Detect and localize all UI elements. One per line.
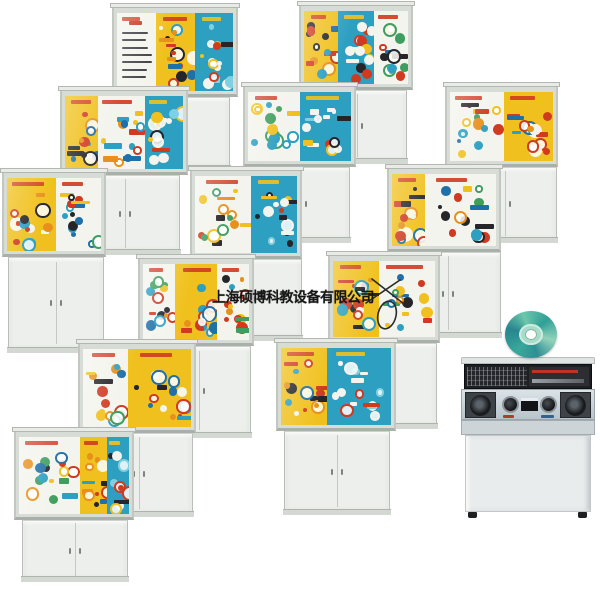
model-part (240, 223, 251, 227)
model-part (303, 408, 307, 412)
model-part (409, 195, 425, 199)
model-part (209, 72, 218, 81)
model-part (367, 26, 374, 36)
console-foot-left (468, 512, 477, 518)
model-part (152, 292, 164, 304)
display-panels (7, 178, 101, 251)
model-part (265, 113, 276, 124)
model-part (351, 378, 364, 384)
model-part (276, 106, 282, 112)
panel-white (425, 174, 496, 246)
panel-title-strip (436, 178, 468, 182)
panel-white (98, 96, 145, 169)
model-part (421, 307, 432, 318)
cabinet-display-box (387, 165, 501, 252)
model-part (166, 44, 176, 48)
model-part (543, 112, 552, 121)
model-part (441, 211, 450, 220)
display-panels (195, 176, 297, 253)
panel-yellow (156, 13, 194, 91)
sliding-door-seam (125, 179, 126, 248)
model-part (67, 466, 79, 478)
panel-white (195, 176, 251, 253)
cabinet-display-box (299, 2, 413, 90)
model-part (266, 102, 272, 108)
display-panels (450, 92, 553, 161)
sliding-door-seam (337, 435, 338, 507)
panel-white (56, 178, 101, 251)
panel-title-strip (311, 15, 327, 19)
model-part (306, 61, 314, 65)
stereo-display-stripe (532, 370, 578, 373)
model-part (543, 148, 550, 155)
model-part (279, 215, 288, 219)
cabinet-top-cap (58, 86, 190, 91)
display-panels (281, 348, 391, 425)
model-part (62, 493, 78, 499)
model-part (97, 386, 107, 396)
model-part (103, 156, 118, 162)
panel-white (374, 11, 408, 84)
model-part (344, 362, 357, 375)
console-front-band (461, 420, 595, 435)
cassette-slot (521, 398, 538, 411)
console-top-cap (461, 357, 595, 364)
model-part (263, 206, 274, 217)
display-panels (392, 174, 496, 246)
model-part (200, 54, 204, 58)
model-part (303, 140, 313, 145)
panel-title-strip (12, 182, 44, 186)
model-part (458, 150, 466, 158)
panel-title-strip (306, 96, 340, 100)
console-foot-right (578, 512, 587, 518)
model-part (158, 153, 169, 164)
model-part (213, 42, 221, 50)
label-chip-blue (541, 415, 554, 418)
text-board-line (122, 61, 152, 63)
model-part (527, 140, 540, 153)
model-part (307, 26, 315, 34)
model-part (268, 237, 275, 244)
model-part (317, 69, 327, 79)
model-part (23, 459, 33, 469)
model-part (475, 185, 482, 192)
model-part (200, 326, 204, 330)
panel-teal (145, 96, 183, 169)
console-stereo-deck (529, 367, 589, 386)
panel-title-strip (336, 352, 365, 356)
model-part (87, 453, 93, 459)
model-part (16, 221, 20, 225)
model-part (168, 64, 182, 69)
model-part (35, 463, 45, 473)
model-part (338, 280, 354, 283)
cabinet-top-cap (12, 427, 136, 432)
model-part (43, 223, 52, 232)
model-part (314, 115, 322, 123)
cabinet-top-cap (110, 3, 240, 8)
sliding-door-seam (505, 171, 506, 236)
model-part (221, 42, 233, 47)
model-part (197, 284, 205, 292)
model-part (59, 478, 68, 484)
model-part (36, 193, 45, 197)
model-part (355, 389, 365, 399)
door-handle (143, 471, 145, 477)
model-part (459, 130, 467, 138)
model-part (110, 411, 125, 426)
model-part (355, 46, 365, 56)
model-part (294, 411, 299, 416)
model-part (287, 240, 294, 247)
model-part (255, 214, 260, 219)
model-part (396, 71, 406, 81)
panel-title-strip (140, 353, 172, 357)
model-part (71, 201, 90, 204)
display-panels (304, 11, 408, 84)
text-board-line (122, 76, 146, 78)
console-pedestal (465, 435, 591, 512)
model-part (413, 187, 417, 191)
model-part (418, 280, 425, 287)
cabinet-top-cap (0, 168, 108, 173)
model-part (70, 212, 75, 217)
model-part (114, 364, 120, 370)
door-handle (50, 300, 52, 306)
model-part (337, 388, 346, 397)
model-part (94, 502, 99, 507)
model-part (457, 139, 461, 143)
cabinet-display-box (14, 428, 134, 520)
model-part (340, 404, 353, 417)
panel-teal (251, 176, 297, 253)
control-console (461, 357, 595, 522)
model-part (235, 317, 249, 321)
model-part (222, 275, 230, 283)
model-part (170, 414, 176, 420)
display-panels (117, 13, 233, 91)
model-part (449, 229, 457, 237)
model-part (135, 111, 143, 116)
model-part (323, 115, 330, 119)
model-part (327, 108, 335, 112)
model-part (470, 205, 489, 211)
cabinet-display-box (2, 169, 106, 257)
cabinet-display-box (60, 87, 188, 175)
panel-title-strip (398, 178, 416, 182)
model-part (85, 463, 93, 471)
panel-title-strip (287, 352, 313, 356)
panel-yellow (80, 437, 108, 514)
panel-title-strip (84, 441, 98, 445)
door-handle (452, 291, 454, 297)
model-part (474, 141, 483, 150)
text-board-heading (129, 21, 142, 25)
display-panels (19, 437, 129, 514)
model-part (475, 109, 489, 114)
product-collage: 上海硕博科教设备有限公司 (0, 0, 600, 591)
model-part (331, 26, 339, 32)
speaker-cone-icon (470, 395, 491, 416)
model-part (417, 236, 425, 246)
display-panels (248, 92, 351, 161)
sliding-door-seam (75, 523, 76, 576)
panel-yellow (281, 348, 327, 425)
model-part (154, 315, 166, 327)
model-part (117, 370, 126, 379)
model-part (225, 76, 233, 88)
model-part (438, 205, 442, 209)
model-part (463, 186, 472, 191)
model-part (157, 385, 167, 391)
cabinet-top-cap (76, 339, 198, 344)
model-part (55, 452, 67, 464)
model-part (462, 118, 471, 127)
model-part (284, 382, 290, 388)
panel-title-strip (202, 17, 221, 21)
model-part (337, 116, 351, 121)
model-part (71, 156, 77, 162)
model-part (172, 30, 176, 34)
cabinet-base (22, 520, 128, 582)
console-control-matrix (467, 367, 527, 386)
cabinet-base (284, 431, 390, 515)
panel-title-strip (183, 268, 211, 272)
model-part (475, 224, 494, 229)
text-board-line (122, 69, 147, 71)
model-part (423, 318, 432, 323)
model-part (151, 370, 166, 385)
panel-title-strip (340, 265, 361, 269)
door-handle (69, 548, 71, 554)
model-part (318, 396, 327, 402)
model-part (199, 195, 207, 203)
text-board-line (122, 32, 149, 34)
panel-white (117, 13, 156, 91)
model-part (151, 112, 162, 123)
console-equipment-panel (464, 364, 592, 389)
model-part (187, 51, 194, 65)
model-part (133, 146, 142, 155)
panel-teal (327, 348, 391, 425)
panel-white (248, 92, 300, 161)
panel-teal (300, 92, 352, 161)
label-chip-red (503, 415, 514, 418)
panel-yellow (392, 174, 425, 246)
model-part (76, 152, 84, 156)
door-handle (60, 300, 62, 306)
model-part (82, 112, 87, 117)
model-part (233, 189, 237, 193)
model-part (159, 26, 163, 30)
model-part (97, 460, 107, 472)
speaker-right (560, 392, 591, 418)
model-part (167, 312, 175, 323)
panel-title-strip (71, 100, 91, 104)
model-part (230, 220, 239, 229)
model-part (304, 359, 313, 368)
base-plinth (21, 576, 129, 582)
model-part (136, 122, 145, 131)
model-part (176, 399, 190, 413)
model-part (363, 403, 380, 408)
model-part (224, 317, 229, 322)
text-board-line (122, 47, 148, 49)
panel-title-strip (510, 96, 535, 100)
cabinet-top-cap (188, 166, 304, 171)
model-part (68, 146, 81, 150)
model-part (293, 369, 298, 374)
panel-teal (107, 437, 129, 514)
model-part (360, 372, 367, 376)
model-part (357, 22, 366, 31)
model-part (467, 103, 472, 108)
model-part (148, 403, 153, 408)
model-part (171, 51, 176, 56)
panel-title-strip (149, 100, 167, 104)
panel-white (143, 264, 175, 340)
model-part (302, 123, 311, 132)
model-part (492, 106, 500, 114)
door-handle (129, 211, 131, 217)
model-part (35, 203, 50, 218)
model-part (149, 312, 156, 315)
model-part (387, 64, 396, 73)
model-part (181, 328, 191, 333)
model-part (310, 109, 320, 115)
panel-white (450, 92, 504, 161)
model-part (226, 308, 233, 315)
cabinet-top-cap (443, 82, 560, 87)
model-part (121, 120, 129, 128)
model-part (281, 231, 294, 235)
model-part (49, 495, 58, 504)
model-part (376, 388, 385, 397)
model-part (83, 490, 95, 502)
sliding-door-seam (357, 94, 358, 157)
door-handle (509, 201, 511, 207)
model-part (49, 479, 54, 484)
model-part (285, 399, 292, 406)
model-part (187, 70, 195, 79)
panel-yellow (65, 96, 98, 169)
model-part (71, 232, 76, 237)
model-part (370, 411, 380, 421)
panel-title-strip (92, 353, 115, 357)
model-part (100, 499, 107, 504)
model-part (169, 109, 179, 119)
panel-title-strip (344, 15, 364, 19)
panel-yellow (7, 178, 56, 251)
model-part (95, 492, 99, 496)
sliding-door-seam (139, 437, 140, 509)
model-part (322, 33, 329, 40)
panel-title-strip (206, 180, 238, 184)
model-part (184, 320, 191, 327)
model-part (22, 238, 37, 251)
cabinet-top-cap (326, 251, 442, 256)
model-part (471, 229, 482, 240)
model-part (153, 276, 165, 288)
model-part (104, 143, 122, 149)
panel-title-strip (102, 100, 132, 104)
model-part (300, 386, 314, 400)
model-part (493, 124, 503, 135)
door-handle (442, 291, 444, 297)
cabinet-top-cap (274, 338, 398, 343)
model-part (314, 403, 319, 408)
model-part (364, 55, 374, 65)
panel-yellow (504, 92, 553, 161)
model-part (217, 224, 229, 236)
stereo-button-row (532, 379, 584, 383)
model-part (168, 375, 181, 388)
panel-title-strip (386, 265, 423, 269)
panel-teal (338, 11, 373, 84)
panel-title-strip (258, 180, 279, 184)
door-handle (203, 388, 205, 394)
model-part (13, 239, 19, 245)
model-part (152, 148, 170, 153)
model-part (527, 126, 533, 132)
model-part (177, 387, 187, 397)
model-part (481, 125, 488, 132)
door-handle (305, 201, 307, 207)
model-part (401, 201, 411, 207)
door-handle (361, 123, 363, 129)
sliding-door-seam (56, 262, 57, 345)
model-part (419, 293, 429, 303)
cabinet-display-box (243, 83, 356, 167)
door-handle (119, 211, 121, 217)
panel-title-strip (163, 17, 187, 21)
panel-yellow (128, 349, 191, 427)
panel-yellow (304, 11, 338, 84)
model-part (251, 139, 258, 146)
volume-knob-right (540, 396, 557, 413)
software-cd-disc (505, 311, 557, 358)
model-part (454, 193, 462, 201)
model-part (118, 485, 124, 491)
model-part (236, 328, 249, 333)
model-part (149, 155, 159, 165)
panel-title-strip (255, 96, 277, 100)
model-part (281, 219, 294, 232)
model-part (387, 49, 401, 63)
sliding-door-seam (199, 351, 200, 430)
cabinet-display-box (112, 4, 238, 97)
model-part (110, 503, 122, 514)
model-part (86, 372, 95, 375)
model-part (101, 399, 110, 408)
model-part (118, 459, 129, 471)
model-part (287, 111, 300, 116)
model-part (209, 24, 214, 29)
model-part (338, 361, 343, 366)
door-handle (331, 469, 333, 475)
model-part (395, 33, 406, 44)
model-part (177, 416, 191, 420)
model-part (279, 208, 284, 213)
panel-title-strip (222, 268, 239, 272)
panel-title-strip (455, 96, 481, 100)
model-part (441, 186, 451, 196)
cabinet-display-box (190, 167, 302, 259)
model-part (75, 217, 83, 225)
model-part (86, 126, 96, 136)
model-part (124, 154, 132, 162)
